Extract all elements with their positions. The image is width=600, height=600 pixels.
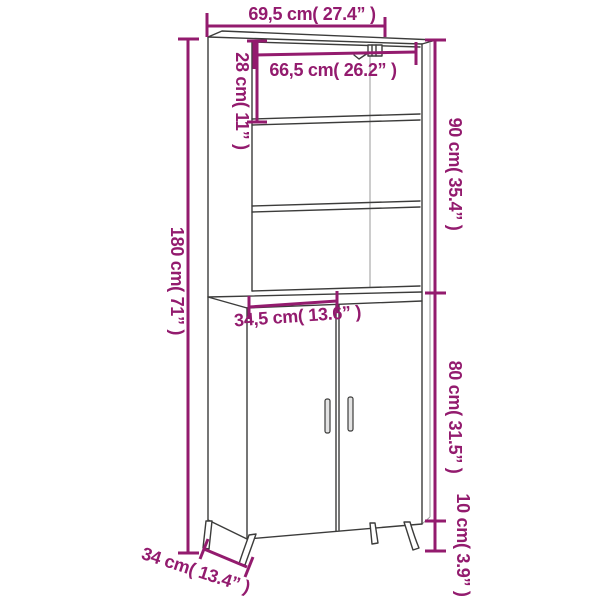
leg-back-right	[370, 523, 378, 544]
shelf-1-top-edge	[252, 114, 420, 119]
cabinet-top-face	[208, 31, 436, 44]
shelf-2-top-edge	[252, 201, 420, 206]
shelf-compartment-bottom	[252, 286, 420, 291]
dim-upper-section-height: 90 cm( 35.4” )	[425, 40, 465, 293]
door-handle-right	[348, 397, 353, 431]
dim-top-width-label: 69,5 cm( 27.4” )	[248, 4, 376, 24]
dim-leg-height-label: 10 cm( 3.9” )	[453, 493, 473, 596]
dim-top-compartment-height: 28 cm( 11” )	[232, 41, 267, 150]
lower-bottom-left-edge	[208, 520, 247, 539]
shelf-2-front-edge	[252, 207, 420, 212]
dim-top-compartment-height-label: 28 cm( 11” )	[232, 52, 252, 150]
dim-line	[254, 52, 416, 55]
divider-back-edge	[208, 292, 422, 297]
leg-front-left	[239, 534, 256, 565]
dim-lower-section-height-label: 80 cm( 31.5” )	[445, 361, 465, 474]
dim-inner-width-label: 66,5 cm( 26.2” )	[269, 60, 397, 80]
divider-left-edge	[208, 297, 247, 308]
lower-bottom-front-edge	[247, 524, 422, 539]
dim-depth-label: 34 cm( 13.4” )	[139, 543, 253, 597]
dim-inner-width: 66,5 cm( 26.2” )	[254, 42, 416, 80]
dim-upper-section-height-label: 90 cm( 35.4” )	[445, 118, 465, 231]
dimension-annotations: 69,5 cm( 27.4” ) 66,5 cm( 26.2” ) 28 cm(…	[139, 4, 473, 597]
dim-lower-section-height: 80 cm( 31.5” )	[425, 293, 465, 521]
leg-front-right	[404, 522, 419, 550]
dimension-diagram-canvas: 69,5 cm( 27.4” ) 66,5 cm( 26.2” ) 28 cm(…	[0, 0, 600, 600]
dim-total-height: 180 cm( 71” )	[167, 39, 199, 553]
shelf-1-front-edge	[252, 120, 420, 125]
product-dimension-diagram: 69,5 cm( 27.4” ) 66,5 cm( 26.2” ) 28 cm(…	[0, 0, 600, 600]
dim-door-width: 34,5 cm( 13.6” )	[233, 291, 362, 330]
dim-depth: 34 cm( 13.4” )	[139, 539, 253, 597]
dim-leg-height: 10 cm( 3.9” )	[425, 493, 473, 596]
dim-total-height-label: 180 cm( 71” )	[167, 227, 187, 335]
door-handle-left	[325, 399, 330, 433]
